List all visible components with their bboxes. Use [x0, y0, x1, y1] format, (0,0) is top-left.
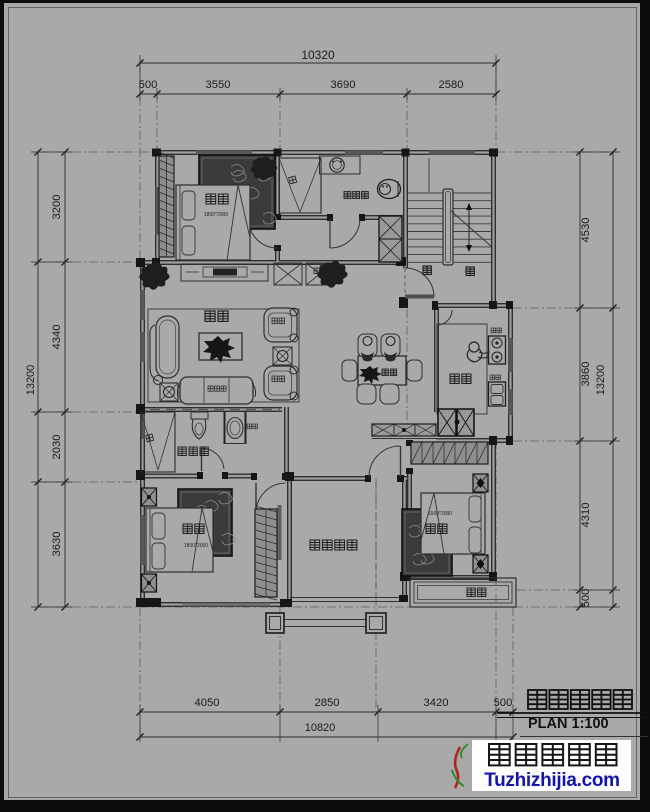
- svg-text:3200: 3200: [51, 195, 63, 220]
- svg-text:3550: 3550: [206, 79, 231, 91]
- svg-text:PLAN 1:100: PLAN 1:100: [528, 716, 609, 732]
- svg-text:500: 500: [139, 79, 158, 91]
- svg-text:1500*2000: 1500*2000: [428, 511, 452, 517]
- svg-text:1800*2000: 1800*2000: [184, 543, 208, 549]
- svg-text:1800*2000: 1800*2000: [204, 212, 228, 218]
- svg-text:3690: 3690: [331, 79, 356, 91]
- svg-text:Tuzhizhijia.com: Tuzhizhijia.com: [484, 770, 620, 791]
- svg-text:4530: 4530: [580, 218, 592, 243]
- svg-text:13200: 13200: [25, 365, 37, 396]
- svg-text:10320: 10320: [301, 48, 335, 62]
- svg-text:3630: 3630: [51, 532, 63, 557]
- svg-text:3860: 3860: [580, 362, 592, 387]
- svg-text:3420: 3420: [424, 697, 449, 709]
- svg-text:4050: 4050: [195, 697, 220, 709]
- svg-text:500: 500: [580, 589, 592, 608]
- svg-text:2030: 2030: [51, 435, 63, 460]
- svg-text:13200: 13200: [595, 365, 607, 396]
- svg-text:2580: 2580: [439, 79, 464, 91]
- svg-text:4340: 4340: [51, 325, 63, 350]
- svg-text:500: 500: [494, 697, 513, 709]
- svg-text:10820: 10820: [305, 722, 336, 734]
- svg-text:2850: 2850: [315, 697, 340, 709]
- svg-text:4310: 4310: [580, 503, 592, 528]
